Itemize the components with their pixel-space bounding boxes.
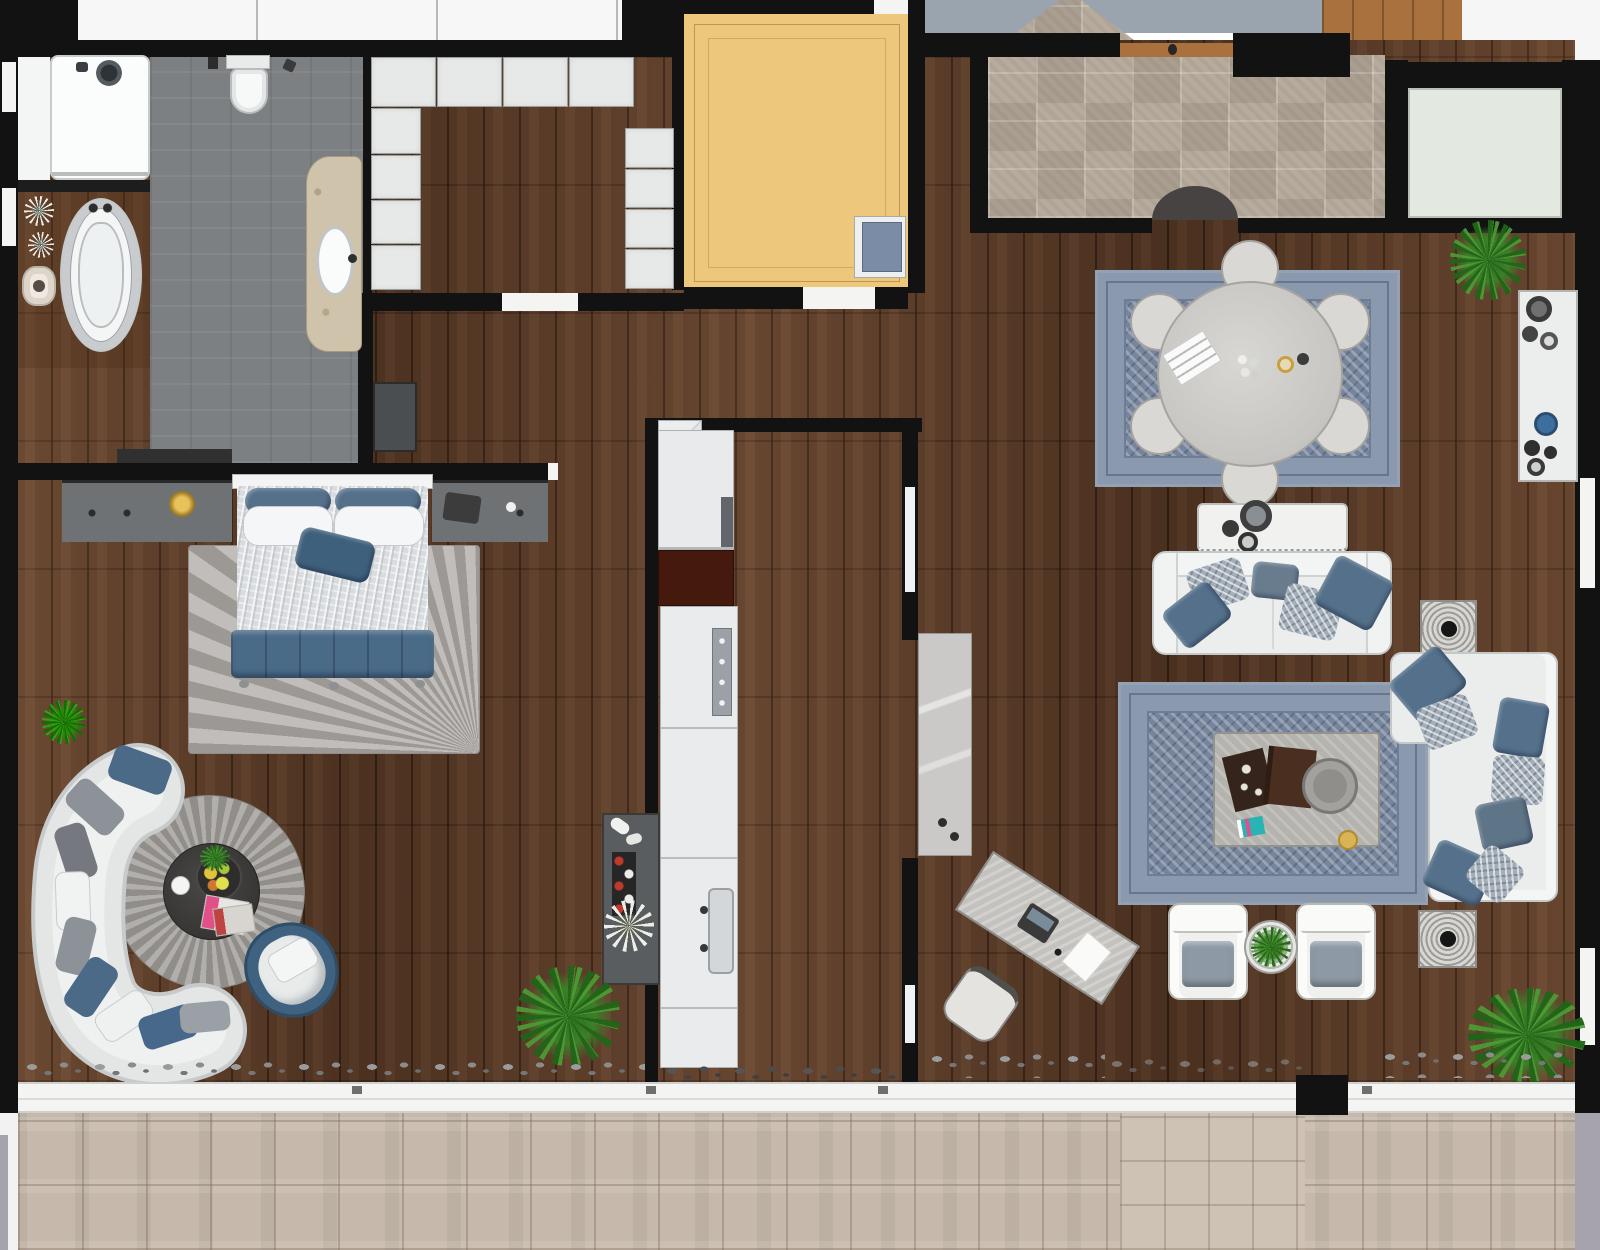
gold-plate <box>1338 830 1358 850</box>
closet-cabinet <box>371 57 436 107</box>
pebble-strip <box>1378 1048 1570 1078</box>
door-panel-handle2 <box>950 832 959 841</box>
wall-foyer-right <box>1385 60 1408 233</box>
bed-bench <box>231 630 434 678</box>
kitchen-sink <box>708 888 734 974</box>
bath-soap-dish <box>24 196 54 226</box>
pebble-strip <box>925 1050 1105 1078</box>
shower-valve-icon <box>76 62 88 72</box>
console-bowl <box>1526 296 1552 322</box>
floor-plan <box>0 0 1600 1250</box>
balcony-right-strip <box>1575 1113 1600 1250</box>
corridor-glass-slit2 <box>905 985 915 1043</box>
tub-faucet-icon <box>88 203 114 213</box>
corridor-glass-slit <box>905 487 915 592</box>
wall-tubroom-divider <box>18 180 150 192</box>
wall-foyer-bottom-right <box>1238 218 1408 233</box>
wall-left <box>0 0 18 1113</box>
bath-stool-dot <box>33 280 45 292</box>
closet-cabinet <box>503 57 568 107</box>
console-object <box>1222 520 1239 537</box>
kitchen-appliance-slot <box>721 497 733 547</box>
closet-cabinet <box>625 209 674 248</box>
armchair <box>1296 903 1376 1000</box>
shower-niche <box>18 57 50 180</box>
wall-utility-right <box>1562 60 1575 233</box>
desk-dot <box>1053 947 1063 957</box>
door-panel-handle <box>938 818 947 827</box>
foyer-plant <box>1450 220 1526 300</box>
bathtub-inner <box>78 222 124 328</box>
table-dark-plate <box>1297 353 1309 365</box>
bed-foot <box>415 680 425 688</box>
door-handle-tick <box>878 1086 888 1094</box>
pebble-strip <box>1105 1055 1305 1079</box>
kitchen-faucet-icon2 <box>700 944 708 952</box>
balcony-tiles-path <box>1120 1113 1305 1250</box>
desk-paper <box>1061 931 1111 982</box>
closet-cabinet <box>437 57 502 107</box>
balcony-left-strip <box>0 1135 8 1250</box>
balcony-doors <box>18 1082 1296 1113</box>
shower-door-line <box>52 172 148 176</box>
bar-flowers <box>604 900 654 952</box>
console-dark-dot2 <box>1544 446 1557 459</box>
table-centerpiece <box>1234 350 1262 382</box>
closet-cabinet <box>569 57 634 107</box>
console-ring3 <box>1527 458 1545 476</box>
closet-cabinet <box>371 155 421 199</box>
console-ring <box>1238 532 1258 552</box>
storage-door-gap <box>803 287 875 309</box>
bath-door-mark <box>208 57 218 69</box>
coffee-cup <box>171 876 190 895</box>
table-gold-plate <box>1277 356 1294 373</box>
closet-cabinet <box>625 249 674 289</box>
bed-foot <box>329 682 339 690</box>
outside-corridor <box>925 0 1350 33</box>
storage-duct <box>862 222 902 272</box>
top-window-band <box>78 0 622 42</box>
closet-cabinet <box>625 169 674 208</box>
wall-over-nook <box>918 33 1120 57</box>
entry-door-pivot <box>1168 44 1177 55</box>
bedside-dot <box>506 502 516 512</box>
shower-head-icon <box>96 60 122 86</box>
kitchen-oven <box>712 628 732 716</box>
console-speaker <box>1240 500 1272 532</box>
balcony-tiles <box>18 1113 1575 1250</box>
door-handle-tick <box>1362 1086 1372 1094</box>
left-wall-window <box>2 62 16 112</box>
pebble-strip <box>20 1058 645 1082</box>
closet-cabinet <box>371 245 421 290</box>
sofa-l-pillow <box>1492 696 1551 760</box>
wall-right-of-entry-door <box>1233 33 1350 77</box>
console-dark-dot <box>1524 440 1540 456</box>
console-blue-bowl <box>1534 412 1558 436</box>
bedside-lamp <box>168 490 196 518</box>
wall-corridor-right-lower <box>902 858 918 1082</box>
bed-foot <box>239 680 249 688</box>
closet-dresser <box>373 382 417 452</box>
media-console <box>1197 503 1348 552</box>
closet-cabinet <box>371 108 421 154</box>
bedside-tray <box>442 492 482 525</box>
bedroom-plant-large <box>516 966 620 1066</box>
balcony-doors-right <box>1348 1082 1575 1113</box>
bedroom-door-jamb <box>548 463 558 480</box>
right-wall-window <box>1580 478 1595 588</box>
kitchen-stove-section <box>658 550 734 606</box>
left-wall-window2 <box>2 188 16 246</box>
utility-room-floor <box>1408 88 1562 218</box>
pebble-strip <box>660 1062 902 1082</box>
bath-bench <box>117 449 232 463</box>
kitchen-faucet-icon <box>700 906 708 914</box>
table-plant <box>1251 927 1291 967</box>
door-handle-tick <box>352 1086 362 1094</box>
console-bowl-small <box>1522 326 1538 342</box>
wall-utility-top <box>1408 62 1580 88</box>
door-handle-tick <box>646 1086 656 1094</box>
magazine2 <box>212 903 256 936</box>
sink-faucet-icon <box>348 254 357 263</box>
bed <box>237 474 428 690</box>
wall-foyer-bottom-left <box>988 218 1152 233</box>
armchair <box>1168 903 1248 1000</box>
wall-balcony-stub <box>1296 1075 1348 1115</box>
toilet-tank <box>226 55 270 69</box>
closet-cabinet <box>625 128 674 168</box>
storage-top-door-gap <box>874 0 908 14</box>
round-tray <box>1302 758 1358 814</box>
nightstand-console-left <box>62 480 232 542</box>
side-table <box>1418 910 1477 968</box>
closet-cabinet <box>371 200 421 244</box>
closet-door-gap <box>502 293 578 311</box>
bath-flower <box>28 232 54 258</box>
wall-foyer-left <box>970 55 988 233</box>
bowl-greens <box>200 845 230 871</box>
toilet-bowl <box>230 68 268 114</box>
console-ring2 <box>1540 332 1558 350</box>
